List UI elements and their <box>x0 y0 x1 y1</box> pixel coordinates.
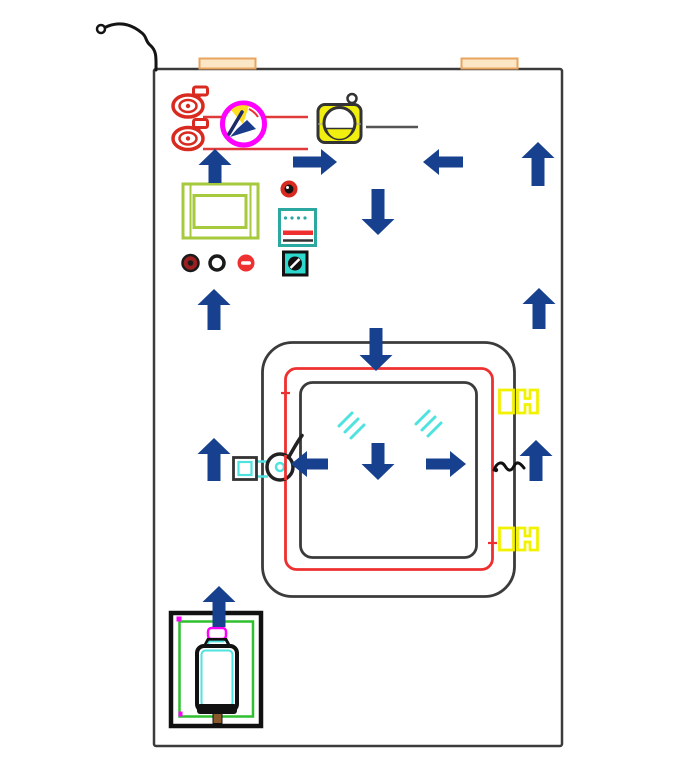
panel-dot <box>290 216 293 219</box>
valve-stem <box>194 87 208 95</box>
knob-glint <box>286 186 289 189</box>
magenta-tick-top <box>177 617 182 622</box>
valve-center-dot <box>186 136 190 140</box>
bottle-body <box>197 646 237 711</box>
diagram-canvas <box>0 0 700 771</box>
hinge-leaf <box>500 528 514 550</box>
schematic-scene <box>0 0 700 771</box>
lamp-dash <box>241 261 251 265</box>
lamp-mark <box>188 260 194 266</box>
top-hinge-right <box>462 59 518 69</box>
hinge-leaf <box>500 390 514 413</box>
hose-end-fitting <box>97 25 105 33</box>
indicator-lamp-red <box>238 255 255 272</box>
top-hinge-left <box>200 59 256 69</box>
panel-dot <box>297 216 300 219</box>
latch-keeper <box>234 458 257 480</box>
panel-red-bar <box>283 231 313 236</box>
bottle-drain-nub <box>213 714 222 724</box>
indicator-lamp-white <box>210 256 224 270</box>
door-hinge-top <box>500 390 538 413</box>
bottle-base <box>197 704 237 714</box>
knob-ring <box>283 183 296 196</box>
key-switch <box>284 252 308 275</box>
degree-mark <box>348 94 357 103</box>
panel-dot <box>303 216 306 219</box>
bottle-cap <box>208 628 226 639</box>
inlet-hose <box>97 24 156 70</box>
indicator-lamp-dark-red <box>183 255 199 271</box>
magenta-tick-bottom <box>179 712 183 717</box>
latch-clamp-knob <box>494 468 498 472</box>
generator-box <box>171 613 261 726</box>
buzzer-knob <box>283 183 296 196</box>
panel-dot <box>284 216 287 219</box>
latch-hub-pin <box>276 463 284 471</box>
display-panel <box>280 210 316 246</box>
valve-center-dot <box>186 104 190 108</box>
chart-recorder-icon <box>223 103 265 145</box>
door-hinge-bottom <box>500 528 538 550</box>
hose-curve <box>106 24 156 70</box>
valve-stem <box>194 120 208 128</box>
